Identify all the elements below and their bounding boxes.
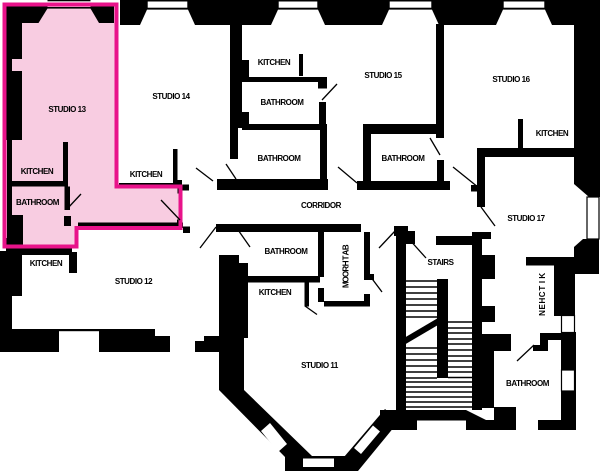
svg-text:O: O — [341, 271, 350, 277]
svg-text:STUDIO 13: STUDIO 13 — [48, 105, 86, 114]
svg-text:STUDIO 17: STUDIO 17 — [507, 214, 545, 223]
svg-text:KITCHEN: KITCHEN — [130, 170, 163, 179]
svg-text:STUDIO 15: STUDIO 15 — [364, 71, 402, 80]
svg-text:KITCHEN: KITCHEN — [21, 167, 54, 176]
svg-text:KITCHEN: KITCHEN — [259, 288, 292, 297]
svg-text:T: T — [341, 255, 350, 260]
svg-text:N: N — [538, 310, 547, 316]
svg-text:M: M — [341, 281, 350, 288]
svg-text:STUDIO 16: STUDIO 16 — [492, 75, 530, 84]
svg-text:I: I — [538, 281, 547, 283]
svg-text:KITCHEN: KITCHEN — [30, 259, 63, 268]
svg-text:BATHROOM: BATHROOM — [382, 154, 426, 163]
svg-text:STAIRS: STAIRS — [427, 258, 454, 267]
svg-text:BATHROOM: BATHROOM — [258, 154, 302, 163]
svg-text:R: R — [341, 266, 350, 272]
svg-text:K: K — [538, 273, 547, 279]
svg-text:H: H — [341, 260, 350, 266]
svg-text:B: B — [341, 244, 350, 250]
svg-text:KITCHEN: KITCHEN — [536, 129, 569, 138]
svg-text:STUDIO 12: STUDIO 12 — [115, 277, 153, 286]
svg-text:O: O — [341, 276, 350, 282]
svg-text:BATHROOM: BATHROOM — [265, 247, 309, 256]
svg-text:BATHROOM: BATHROOM — [261, 98, 305, 107]
svg-text:BATHROOM: BATHROOM — [16, 198, 60, 207]
svg-text:BATHROOM: BATHROOM — [506, 379, 550, 388]
svg-text:KITCHEN: KITCHEN — [258, 58, 291, 67]
svg-text:A: A — [341, 249, 350, 255]
svg-text:C: C — [538, 291, 547, 297]
svg-text:H: H — [538, 297, 547, 303]
svg-text:T: T — [538, 286, 547, 291]
svg-text:STUDIO 14: STUDIO 14 — [152, 92, 190, 101]
svg-text:STUDIO 11: STUDIO 11 — [301, 361, 339, 370]
svg-text:CORRIDOR: CORRIDOR — [301, 201, 342, 210]
